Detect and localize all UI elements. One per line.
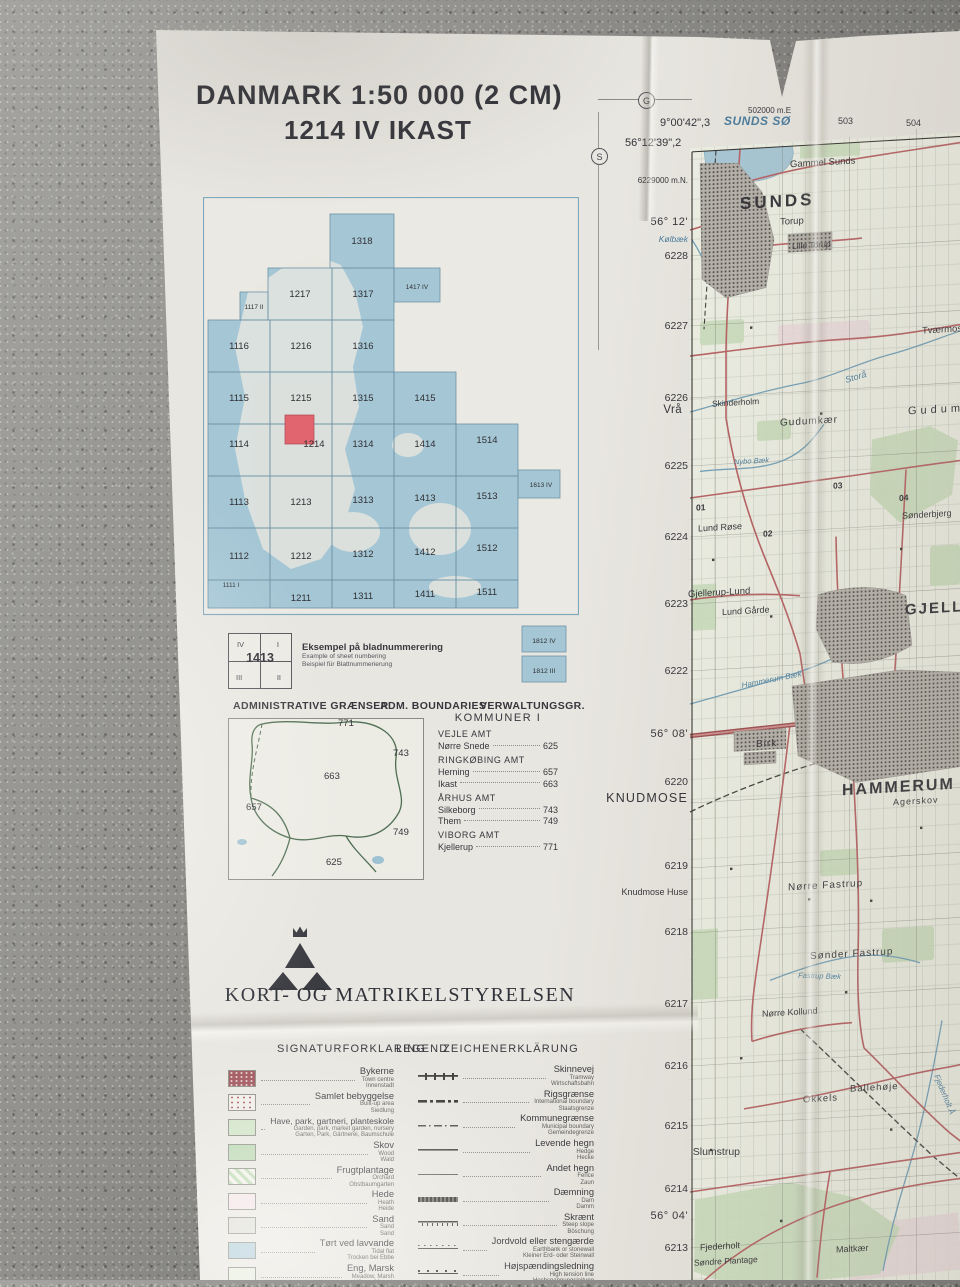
legend-row: Have, park, gartneri, planteskoleGarden,… — [228, 1115, 394, 1140]
legend-label-da: Skov — [373, 1141, 394, 1151]
index-cell-label: 1412 — [414, 547, 435, 558]
index-cell-label: 1513 — [476, 491, 497, 502]
margin-label: Vrå — [663, 404, 682, 416]
topographic-map: SUNDS Gammel Sunds Torup Lille Torup Tvæ… — [690, 134, 960, 1280]
margin-label: 6217 — [665, 998, 688, 1010]
margin-label: 6218 — [665, 926, 688, 938]
legend-label-da: Have, park, gartneri, planteskole — [270, 1117, 394, 1126]
legend-left-column: BykerneTown centreInnenstadt Samlet beby… — [228, 1066, 394, 1287]
kommune-code: 743 — [543, 805, 558, 815]
margin-label: 6213 — [665, 1242, 688, 1254]
margin-label: 6226 — [665, 392, 688, 404]
sample-municipal-boundary — [418, 1120, 458, 1130]
margin-label: 6224 — [665, 531, 688, 543]
dot-leader — [261, 1129, 265, 1130]
index-cell-label: 1314 — [352, 439, 373, 450]
margin-label: 6220 — [665, 776, 688, 788]
admin-number: 749 — [393, 827, 409, 838]
legend-label-da: Sand — [372, 1215, 394, 1225]
map-place-label: Birk — [756, 738, 777, 750]
kommune-row: Nørre Snede625 — [438, 741, 558, 751]
swatch-orchard — [228, 1168, 256, 1185]
swatch-town-centre — [228, 1070, 256, 1087]
grid-square-number: 02 — [763, 528, 773, 539]
legend-label-en: Meadow, Marsh — [347, 1274, 394, 1280]
amt-header: ÅRHUS AMT — [438, 793, 558, 803]
swatch-built-up-area — [228, 1094, 256, 1111]
kommune-code: 625 — [543, 741, 558, 751]
sample-fence — [418, 1170, 458, 1180]
index-cell-label: 1117 II — [245, 304, 264, 311]
margin-label: 6227 — [665, 320, 688, 332]
index-cell-label: 1113 — [229, 497, 249, 508]
margin-label: 6228 — [665, 250, 688, 262]
dot-leader — [261, 1104, 310, 1105]
legend-label-de: Wald — [373, 1157, 394, 1163]
legend-label-de: Obstbaumgarten — [337, 1182, 394, 1188]
index-cell-label: 1212 — [290, 551, 311, 562]
index-cell-label: 1112 — [229, 551, 249, 562]
dot-leader — [261, 1080, 355, 1081]
dot-leader — [261, 1252, 315, 1253]
index-cell-label: 1316 — [352, 341, 373, 352]
legend-label-da: Frugtplantage — [337, 1166, 394, 1176]
index-cell-label: 1217 — [289, 289, 310, 300]
dot-leader — [463, 1127, 515, 1128]
admin-number: 771 — [338, 718, 354, 729]
legend-header-en: LEGEND — [396, 1043, 448, 1055]
example-caption: Eksempel på bladnummerering Example of s… — [302, 642, 443, 669]
kommune-row: Silkeborg743 — [438, 805, 558, 815]
sheet-title: DANMARK 1:50 000 (2 CM) — [196, 80, 563, 111]
amt-header: VEJLE AMT — [438, 729, 558, 739]
grid-square-number: 04 — [899, 492, 909, 503]
legend-label-da: Bykerne — [360, 1067, 394, 1077]
index-cell-label: 1514 — [476, 435, 497, 446]
index-cell-label: 1417 IV — [406, 284, 429, 291]
index-cell-label: 1511 — [477, 587, 497, 598]
kommuner-list: KOMMUNER I VEJLE AMT Nørre Snede625 RING… — [438, 712, 558, 854]
map-water-label: Fastrup Bæk — [798, 971, 843, 981]
kommune-code: 749 — [543, 816, 558, 826]
sheet-index-map: 1318 1217 1317 1417 IV 1117 II 1116 1216… — [203, 197, 579, 697]
index-cell-label: 1411 — [415, 589, 435, 600]
index-cell-label: 1216 — [290, 341, 311, 352]
sample-steep-slope — [418, 1219, 458, 1229]
example-sheet-number: 1413 — [229, 651, 291, 665]
kommune-row: Ikast663 — [438, 779, 558, 789]
quadrant-label: III — [236, 673, 242, 682]
index-cell-label: 1414 — [414, 439, 435, 450]
legend-label-da: Samlet bebyggelse — [315, 1092, 394, 1102]
margin-label: 6225 — [665, 460, 688, 472]
margin-label: 56° 12' — [650, 216, 688, 228]
publisher-name: KORT- OG MATRIKELSTYRELSEN — [210, 984, 590, 1007]
map-sheet-paper: DANMARK 1:50 000 (2 CM) 1214 IV IKAST G … — [0, 0, 960, 1280]
index-cell-label: 1116 — [229, 341, 249, 352]
lake-name-label: SUNDS SØ — [724, 114, 791, 128]
legend-label-de: Siedlung — [315, 1108, 394, 1114]
legend-row: BykerneTown centreInnenstadt — [228, 1066, 394, 1091]
kommuner-title: KOMMUNER I — [438, 712, 558, 724]
dot-leader — [460, 782, 540, 783]
margin-label: 6223 — [665, 598, 688, 610]
legend-row: Samlet bebyggelseBuilt-up areaSiedlung — [228, 1091, 394, 1116]
margin-label: 6219 — [665, 860, 688, 872]
legend-row: HedeHeathHeide — [228, 1189, 394, 1214]
longitude-label: 9°00'42",3 — [660, 117, 710, 129]
example-caption-en: Example of sheet numbering — [302, 653, 443, 661]
example-caption-de: Beispiel für Blattnummerierung — [302, 661, 443, 669]
index-cell-label: 1812 III — [533, 668, 556, 675]
dot-leader — [464, 820, 540, 821]
dot-leader — [261, 1178, 332, 1179]
sample-hedge — [418, 1145, 458, 1155]
index-cell-label: 1812 IV — [532, 638, 556, 645]
legend-label-da: Tørt ved lavvande — [320, 1239, 394, 1249]
legend-row: Eng, MarskMeadow, MarshWiese, Marsch — [228, 1263, 394, 1287]
margin-label: Kølbæk — [659, 234, 688, 244]
quadrant-label: I — [277, 640, 279, 649]
legend-label-de: Trocken bei Ebbe — [320, 1255, 394, 1261]
index-cell-label: 1215 — [290, 393, 311, 404]
kommune-name: Nørre Snede — [438, 741, 490, 751]
kommune-name: Silkeborg — [438, 805, 476, 815]
admin-boundaries-map: 771 743 663 657 749 625 — [228, 718, 424, 880]
kommune-row: Herning657 — [438, 767, 558, 777]
kommune-name: Herning — [438, 767, 470, 777]
swatch-meadow-marsh — [228, 1267, 256, 1284]
index-cell-label: 1317 — [352, 289, 373, 300]
kommune-code: 657 — [543, 767, 558, 777]
swatch-wood — [228, 1144, 256, 1161]
margin-label: Knudmose Huse — [621, 887, 688, 897]
crown-icon — [293, 927, 307, 938]
dot-leader — [463, 1176, 541, 1177]
latitude-label: 56°12'39",2 — [625, 137, 681, 149]
sample-high-tension-line — [418, 1268, 458, 1278]
admin-number: 663 — [324, 771, 340, 782]
legend-header-de: ZEICHENERKLÄRUNG — [443, 1043, 579, 1055]
kommune-name: Ikast — [438, 779, 457, 789]
kommune-name: Kjellerup — [438, 842, 473, 852]
dot-leader — [463, 1225, 557, 1226]
dot-leader — [261, 1203, 367, 1204]
admin-header-en: ADM. BOUNDARIES — [380, 700, 486, 712]
triangle-logo-icon — [268, 943, 332, 990]
grid-square-number: 03 — [833, 480, 843, 491]
kommune-row: Kjellerup771 — [438, 842, 558, 852]
dot-leader — [261, 1277, 342, 1278]
dot-leader — [261, 1227, 367, 1228]
swatch-sand — [228, 1217, 256, 1234]
legend-label-de: Sand — [372, 1231, 394, 1237]
index-cell-label: 1415 — [414, 393, 435, 404]
legend-row: Tørt ved lavvandeTidal flatTrocken bei E… — [228, 1238, 394, 1263]
dot-leader — [493, 745, 540, 746]
kommune-row: Them749 — [438, 816, 558, 826]
example-caption-da: Eksempel på bladnummerering — [302, 642, 443, 653]
sample-dam — [418, 1194, 458, 1204]
dot-leader — [463, 1152, 530, 1153]
margin-label: 56° 04' — [650, 1210, 688, 1222]
swatch-tidal-flat — [228, 1242, 256, 1259]
legend-row: SkovWoodWald — [228, 1140, 394, 1165]
index-cell-label: 1313 — [352, 495, 373, 506]
dot-leader — [476, 846, 540, 847]
legend-row: FrugtplantageOrchardObstbaumgarten — [228, 1164, 394, 1189]
dot-leader — [463, 1201, 549, 1202]
amt-header: RINGKØBING AMT — [438, 755, 558, 765]
amt-header: VIBORG AMT — [438, 830, 558, 840]
kommune-name: Them — [438, 816, 461, 826]
index-cell-label: 1214 — [303, 439, 324, 450]
margin-label: 6222 — [665, 665, 688, 677]
map-place-label: Torup — [780, 215, 804, 227]
index-cell-label: 1211 — [291, 593, 311, 604]
kommune-code: 771 — [543, 842, 558, 852]
map-place-label: Okkels — [803, 1092, 838, 1105]
dot-leader — [479, 808, 540, 809]
margin-label: 6229000 m.N. — [638, 176, 688, 185]
swatch-heath — [228, 1193, 256, 1210]
admin-number: 625 — [326, 857, 342, 868]
sample-international-boundary — [418, 1096, 458, 1106]
map-place-label: Maltkær — [836, 1243, 868, 1255]
dot-leader — [463, 1102, 529, 1103]
admin-number: 743 — [393, 748, 409, 759]
legend-label-da: Eng, Marsk — [347, 1264, 394, 1274]
margin-label: 6216 — [665, 1060, 688, 1072]
legend-label-de: Innenstadt — [360, 1083, 394, 1089]
legend-label-de: Wiese, Marsch — [347, 1280, 394, 1286]
legend-label-de: Garten, Park, Gärtnerei, Baumschule — [270, 1132, 394, 1138]
admin-header-da: ADMINISTRATIVE GRÆNSER — [233, 700, 389, 712]
index-cell-label: 1613 IV — [530, 482, 553, 489]
index-cell-label: 1318 — [351, 236, 372, 247]
dot-leader — [463, 1275, 499, 1276]
margin-label: 56° 08' — [650, 728, 688, 740]
index-cell-label: 1512 — [476, 543, 497, 554]
admin-number: 657 — [246, 802, 262, 813]
index-cell-label: 1114 — [229, 439, 249, 450]
sheet-numbering-example: IV I III II 1413 — [228, 633, 292, 689]
dot-leader — [473, 771, 540, 772]
map-place-label: Tværmose — [922, 323, 960, 337]
quadrant-label: IV — [237, 640, 244, 649]
index-cell-label: 1312 — [352, 549, 373, 560]
margin-label: 6214 — [665, 1183, 688, 1195]
sample-earthbank — [418, 1243, 458, 1253]
dot-leader — [261, 1154, 368, 1155]
margin-label: KNUDMOSE — [606, 791, 688, 805]
quadrant-label: II — [277, 673, 281, 682]
dot-leader — [463, 1250, 487, 1251]
kms-logo — [252, 922, 348, 992]
legend-label-da: Hede — [372, 1190, 394, 1200]
legend-label-de: Heide — [372, 1206, 394, 1212]
index-cell-label: 1311 — [353, 591, 373, 602]
sheet-number-title: 1214 IV IKAST — [284, 115, 472, 146]
index-cell-label: 1213 — [290, 497, 311, 508]
easting-label: 504 — [906, 118, 921, 128]
map-west-margin: 6229000 m.N. 56° 12' Kølbæk 6228 6227 62… — [560, 0, 690, 1280]
sample-tramway — [418, 1071, 458, 1081]
index-cell-label: 1115 — [229, 393, 249, 404]
legend-row: SandSandSand — [228, 1214, 394, 1239]
index-cell-label: 1413 — [414, 493, 435, 504]
dot-leader — [463, 1078, 546, 1079]
index-cell-label: 1111 I — [223, 582, 240, 589]
swatch-garden-park — [228, 1119, 256, 1136]
kommune-code: 663 — [543, 779, 558, 789]
grid-square-number: 01 — [696, 502, 706, 513]
index-cell-label: 1315 — [352, 393, 373, 404]
easting-label: 503 — [838, 116, 853, 126]
margin-label: Slumstrup — [693, 1146, 740, 1158]
margin-label: 6215 — [665, 1120, 688, 1132]
